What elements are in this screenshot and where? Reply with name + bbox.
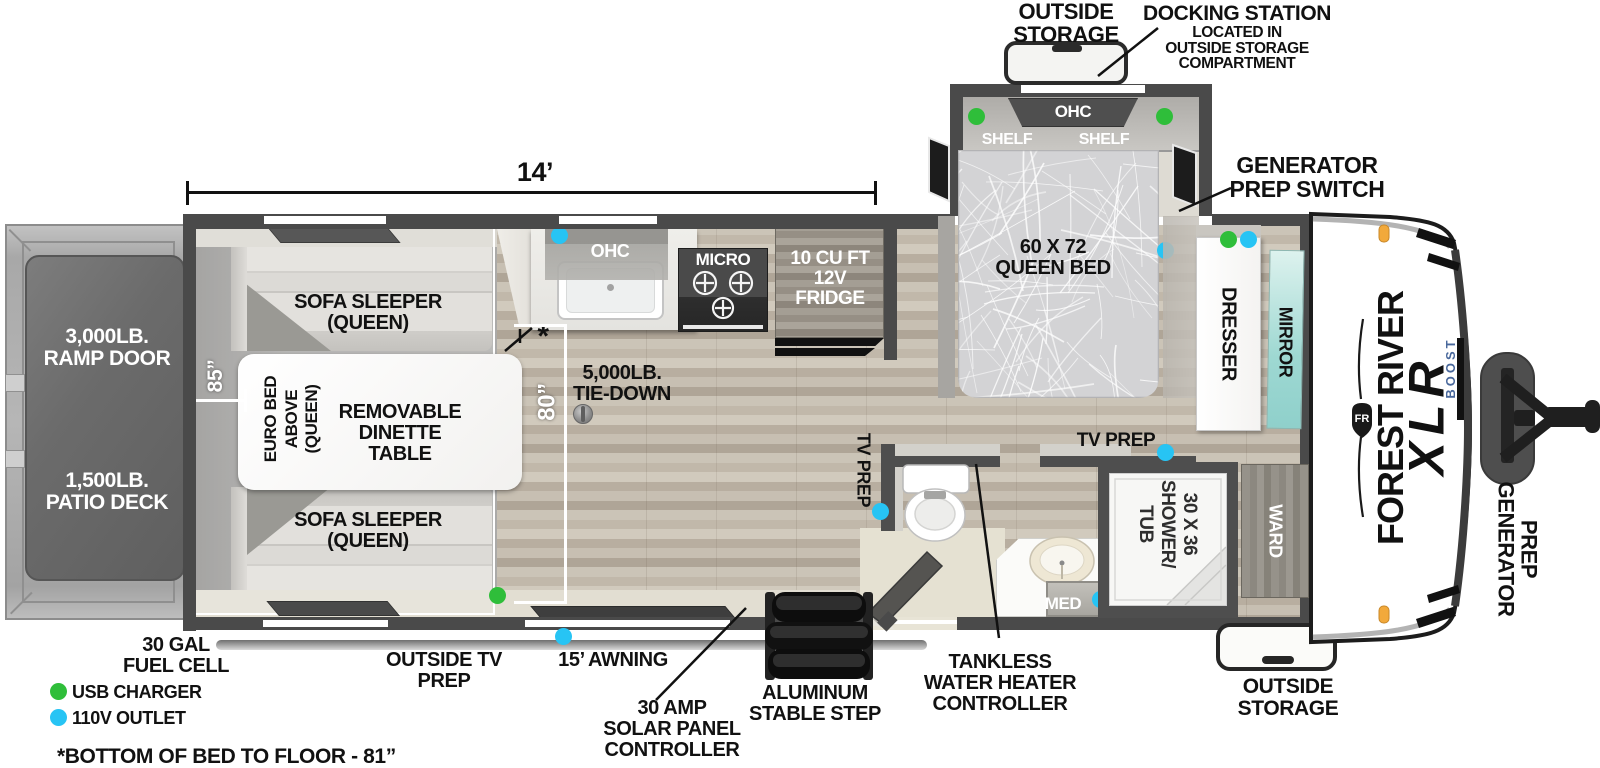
svg-text:FR: FR — [1355, 413, 1370, 425]
